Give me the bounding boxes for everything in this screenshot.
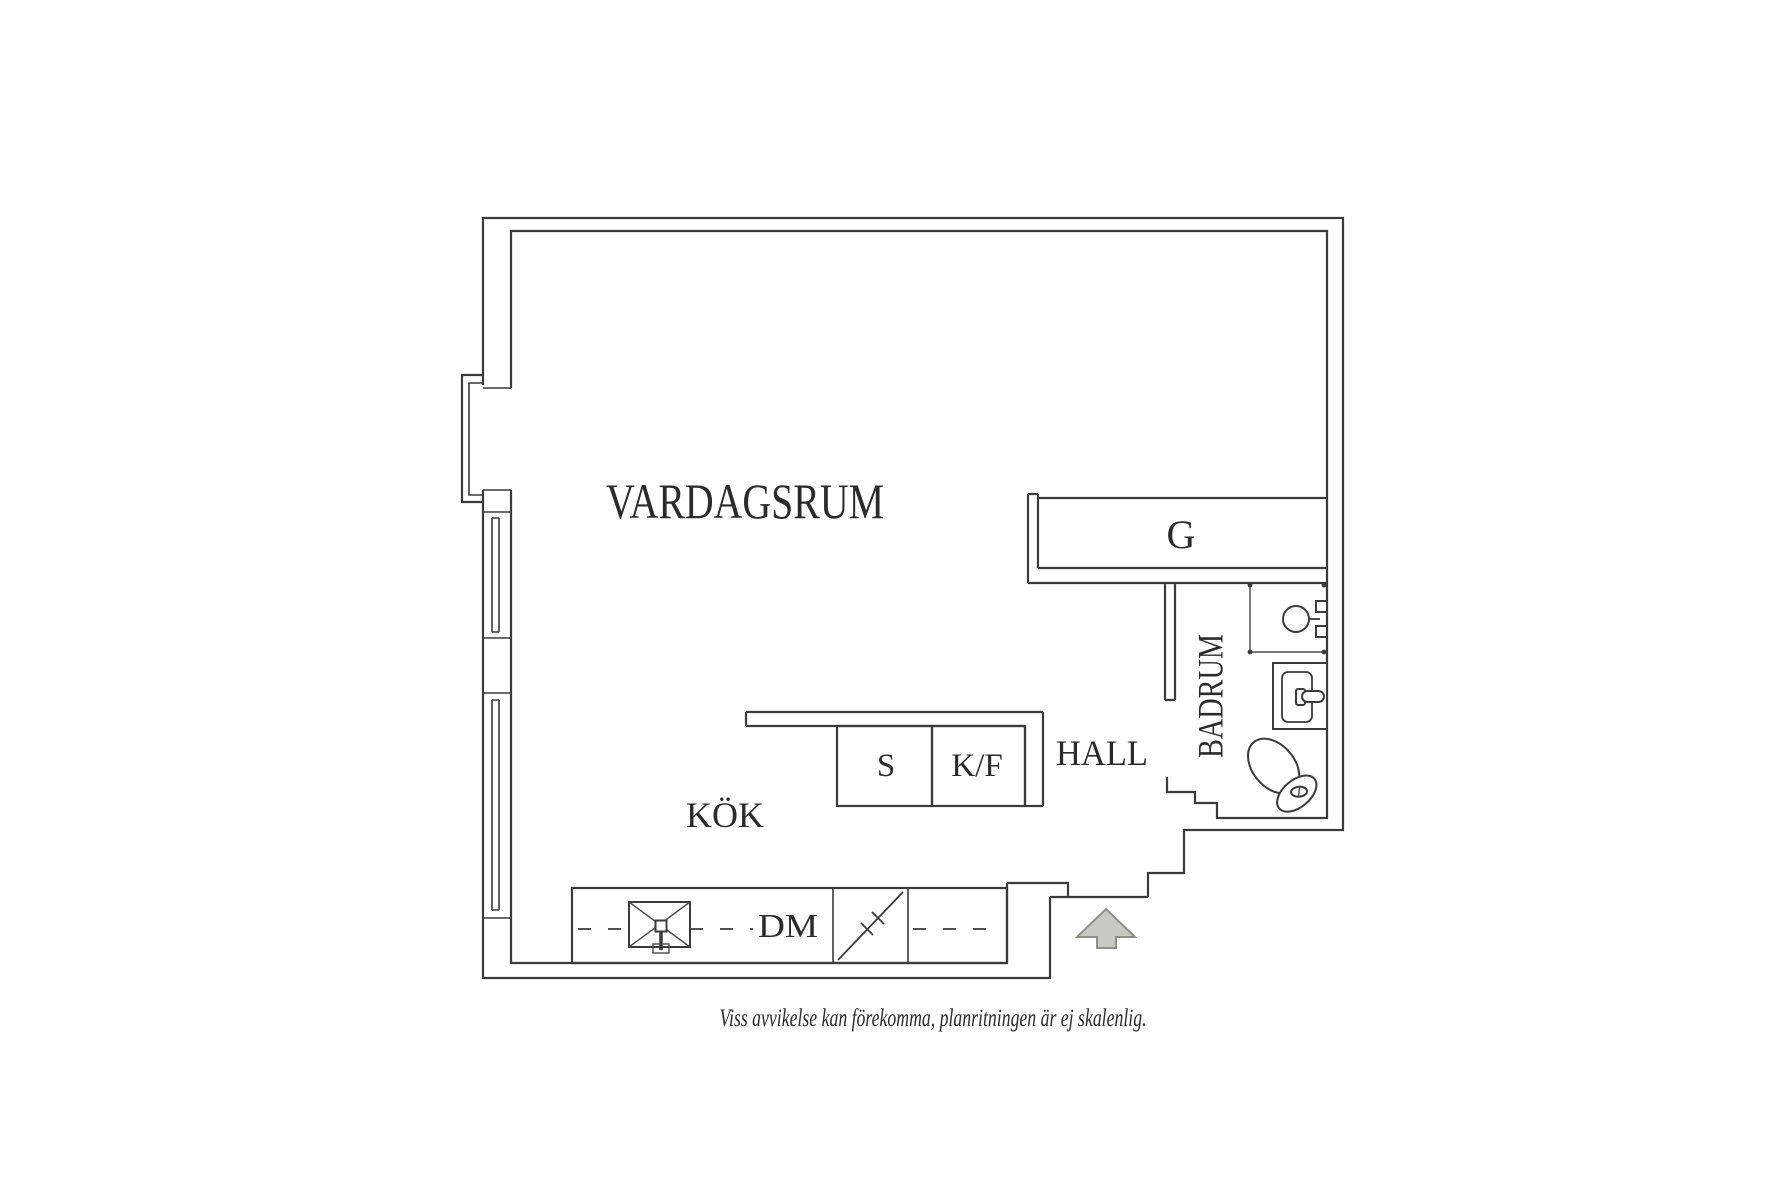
shower-icon xyxy=(1248,583,1327,655)
floor-plan-page: VARDAGSRUM KÖK HALL BADRUM G S K/F DM Vi… xyxy=(0,0,1780,1187)
hall-label: HALL xyxy=(1056,733,1148,773)
window-icon-upper xyxy=(492,518,499,632)
outer-walls xyxy=(483,218,1343,978)
disclaimer-caption: Viss avvikelse kan förekomma, planritnin… xyxy=(720,1005,1147,1032)
dishwasher-label: DM xyxy=(758,908,818,945)
stove-label: S xyxy=(877,748,895,784)
balcony-door-icon xyxy=(462,375,483,502)
cooktop-icon xyxy=(838,892,903,960)
kitchen-label: KÖK xyxy=(686,795,764,835)
entrance-arrow-icon xyxy=(1077,909,1135,948)
bathroom-sink-icon xyxy=(1273,663,1327,729)
window-icon-lower xyxy=(492,700,499,910)
closet-label: G xyxy=(1167,512,1196,557)
fridge-freezer-label: K/F xyxy=(951,748,1002,784)
inner-walls xyxy=(483,231,1327,963)
toilet-icon xyxy=(1236,728,1323,819)
kitchen-sink-icon xyxy=(629,902,690,953)
hall-bathroom-partition xyxy=(1165,583,1175,700)
bathroom-label: BADRUM xyxy=(1191,634,1231,758)
living-room-label: VARDAGSRUM xyxy=(606,473,884,529)
floor-plan-drawing: VARDAGSRUM KÖK HALL BADRUM G S K/F DM Vi… xyxy=(0,0,1780,1187)
